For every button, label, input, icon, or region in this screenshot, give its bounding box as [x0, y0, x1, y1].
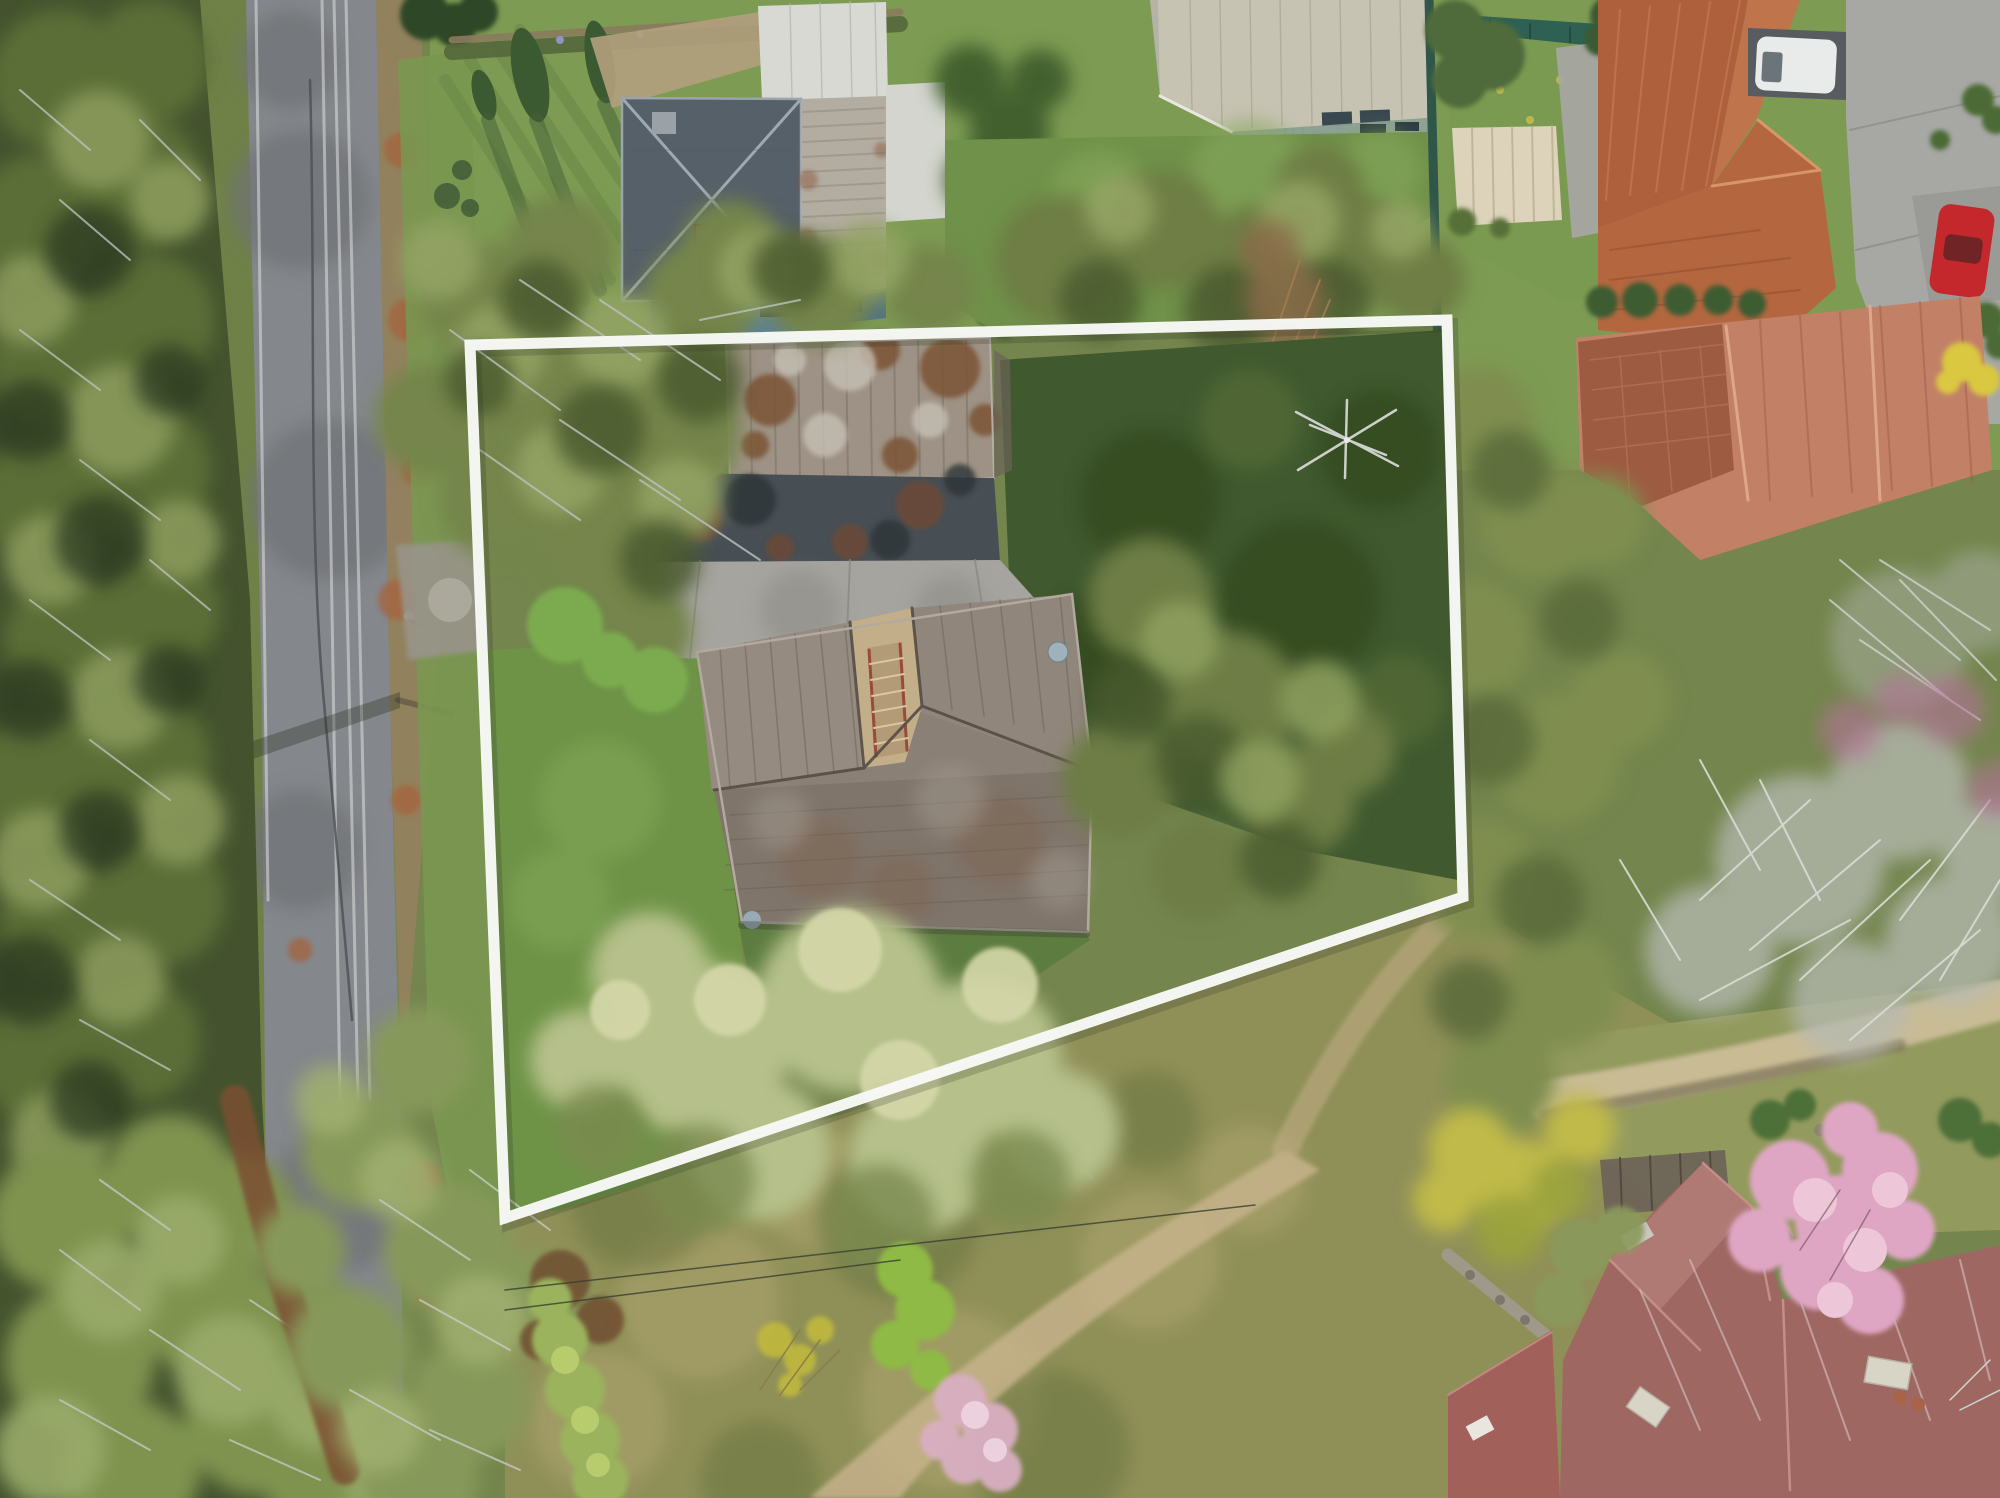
suv-windshield	[1761, 51, 1783, 82]
aerial-property-photo	[0, 0, 2000, 1498]
satellite-dish-1	[1048, 642, 1068, 662]
scene-svg	[0, 0, 2000, 1498]
shed-leanto	[994, 350, 1012, 478]
clothesline-hub	[1344, 437, 1350, 443]
houseA-white-panel-top	[758, 2, 888, 100]
houseA-white-panel-right	[886, 82, 945, 222]
red-car-window	[1942, 233, 1983, 264]
crossover-patch	[428, 578, 472, 622]
chimney-cap	[652, 112, 676, 134]
scene-layers	[0, 0, 2000, 1498]
